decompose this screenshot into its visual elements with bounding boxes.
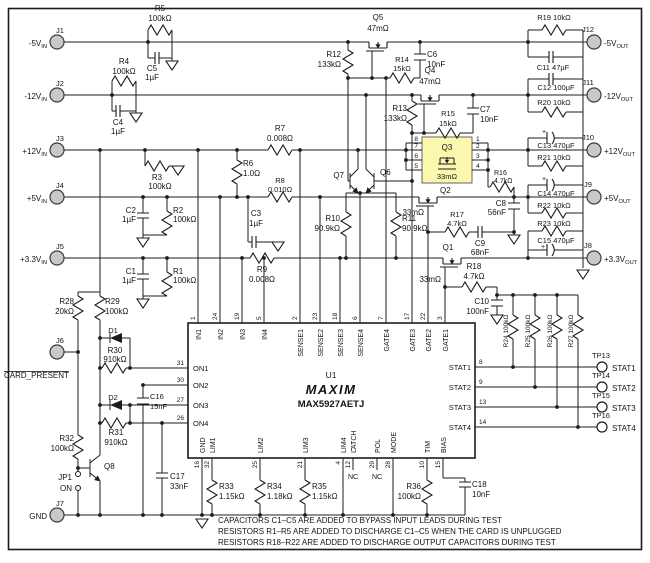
r17-val: 4.7kΩ: [447, 219, 467, 228]
r19-label: R19 10kΩ: [537, 13, 571, 22]
c2-val: 1µF: [122, 215, 136, 224]
pin-num-on2: 30: [177, 377, 185, 384]
c14-plus: +: [542, 176, 546, 183]
r7-ref: R7: [275, 124, 286, 133]
r26-label: R26 100kΩ: [547, 315, 554, 348]
c11-label: C11 47µF: [537, 63, 570, 72]
junction-dot: [526, 256, 530, 260]
pin-num-sense4: 6: [352, 316, 359, 320]
junction-dot: [196, 148, 200, 152]
pin-num-gnd: 16: [194, 461, 201, 469]
r1-ref: R1: [173, 267, 184, 276]
r14-val: 15kΩ: [393, 64, 411, 73]
c16-ref: C16: [150, 392, 164, 401]
q4-val: 47mΩ: [419, 77, 441, 86]
junction-dot: [141, 195, 145, 199]
q7-ref: Q7: [333, 171, 344, 180]
pin-num-stat4: 14: [479, 419, 487, 426]
pin-sense2: SENSE2: [318, 329, 325, 357]
r34-val: 1.18kΩ: [267, 492, 293, 501]
tp16-ref: TP16: [592, 411, 610, 420]
pin-sense4: SENSE4: [358, 329, 365, 357]
r1-val: 100kΩ: [173, 276, 196, 285]
c17-ref: C17: [170, 472, 185, 481]
tp15-ref: TP15: [592, 391, 610, 400]
q3-pin1: 1: [476, 136, 480, 143]
r28-val: 20kΩ: [55, 307, 74, 316]
junction-dot: [356, 148, 360, 152]
j6-ref: J6: [56, 336, 64, 345]
j10-ref: J10: [582, 133, 594, 142]
junction-dot: [511, 293, 515, 297]
jp1-pin-top: [76, 472, 81, 477]
junction-dot: [98, 366, 102, 370]
j9-connector: [587, 190, 601, 204]
r31-ref: R31: [109, 428, 124, 437]
q5-val: 47mΩ: [367, 24, 389, 33]
junction-dot: [486, 148, 490, 152]
q2-ref: Q2: [440, 186, 451, 195]
pin-num-in1: 1: [190, 316, 197, 320]
r16-val: 4.7kΩ: [494, 178, 512, 185]
c8-ref: C8: [496, 199, 507, 208]
r10-val: 90.9kΩ: [314, 224, 340, 233]
pin-num-gate1: 3: [437, 316, 444, 320]
r21-label: R21 10kΩ: [537, 153, 571, 162]
junction-dot: [404, 148, 408, 152]
ic-part: MAX5927AETJ: [298, 399, 365, 410]
r32-ref: R32: [59, 434, 74, 443]
pin-on3: ON3: [193, 401, 208, 410]
junction-dot: [98, 403, 102, 407]
r2-ref: R2: [173, 206, 184, 215]
tp13-label: STAT1: [612, 364, 636, 373]
r35-ref: R35: [312, 482, 327, 491]
junction-dot: [128, 421, 132, 425]
pin-num-gate4: 7: [378, 316, 385, 320]
junction-dot: [218, 195, 222, 199]
junction-dot: [141, 256, 145, 260]
pin-pol: POL: [375, 439, 382, 453]
j5-ref: J5: [56, 242, 64, 251]
jp1-pin-bottom: [76, 486, 81, 491]
r5-val: 100kΩ: [148, 14, 171, 23]
junction-dot: [165, 256, 169, 260]
r33-ref: R33: [219, 482, 234, 491]
pin-gate2: GATE2: [426, 329, 433, 352]
junction-dot: [98, 148, 102, 152]
r16-ref: R16: [494, 170, 507, 177]
c4-val: 1µF: [111, 127, 125, 136]
junction-dot: [422, 131, 426, 135]
pin-lim1: LIM1: [210, 437, 217, 453]
r18-ref: R18: [467, 262, 482, 271]
r36-val: 100kΩ: [398, 492, 421, 501]
j3-connector: [50, 143, 64, 157]
junction-dot: [370, 76, 374, 80]
c6-ref: C6: [427, 50, 438, 59]
j10-connector: [587, 143, 601, 157]
pin-stat1: STAT1: [449, 363, 471, 372]
junction-dot: [76, 513, 80, 517]
pin-on2: ON2: [193, 381, 208, 390]
pin-gate1: GATE1: [443, 329, 450, 352]
tp13-ref: TP13: [592, 351, 610, 360]
j4-connector: [50, 190, 64, 204]
c13-plus: +: [542, 129, 546, 136]
junction-dot: [533, 385, 537, 389]
r9-ref: R9: [257, 265, 268, 274]
note-line-2: RESISTORS R1–R5 ARE ADDED TO DISCHARGE C…: [218, 527, 562, 536]
r14-ref: R14: [395, 55, 409, 64]
junction-dot: [76, 466, 80, 470]
junction-dot: [338, 256, 342, 260]
c3-ref: C3: [251, 209, 262, 218]
j2-ref: J2: [56, 79, 64, 88]
r6-val: 1.0Ω: [243, 169, 260, 178]
r15-ref: R15: [441, 109, 455, 118]
r29-val: 100kΩ: [105, 307, 128, 316]
c10-ref: C10: [474, 297, 489, 306]
pin-on4: ON4: [193, 419, 208, 428]
schematic-page: J1-5VINJ2-12VINJ3+12VINJ4+5VINJ5+3.3VINJ…: [0, 0, 650, 563]
r8-ref: R8: [275, 176, 285, 185]
r4-val: 100kΩ: [112, 67, 135, 76]
pin-latch: LATCH: [351, 431, 358, 453]
junction-dot: [141, 383, 145, 387]
pin-lim3: LIM3: [303, 437, 310, 453]
junction-dot: [384, 76, 388, 80]
pin-gate4: GATE4: [384, 329, 391, 352]
junction-dot: [443, 285, 447, 289]
junction-dot: [418, 40, 422, 44]
junction-dot: [298, 148, 302, 152]
r13-ref: R13: [392, 104, 407, 113]
nc-latch: NC: [348, 474, 358, 481]
j11-connector: [587, 88, 601, 102]
j6-connector: [50, 345, 64, 359]
j11-ref: J11: [582, 78, 594, 87]
junction-dot: [200, 513, 204, 517]
pin-num-gate2: 22: [420, 312, 427, 320]
tp14-label: STAT2: [612, 384, 636, 393]
pin-num-lim1: 32: [204, 461, 211, 469]
pin-tim: TIM: [425, 441, 432, 453]
r31-val: 910kΩ: [104, 438, 127, 447]
junction-dot: [404, 158, 408, 162]
j7-connector: [50, 508, 64, 522]
r4-ref: R4: [119, 57, 130, 66]
j12-connector: [587, 35, 601, 49]
pin-stat3: STAT3: [449, 403, 471, 412]
r12-val: 133kΩ: [318, 60, 341, 69]
c10-val: 100nF: [466, 307, 489, 316]
note-line-3: RESISTORS R18–R22 ARE ADDED TO DISCHARGE…: [218, 538, 556, 547]
c3-val: 1µF: [249, 219, 263, 228]
junction-dot: [210, 513, 214, 517]
pin-num-stat3: 13: [479, 399, 487, 406]
r17-ref: R17: [450, 210, 464, 219]
q1-ref: Q1: [443, 243, 454, 252]
r10-ref: R10: [325, 214, 340, 223]
junction-dot: [128, 403, 132, 407]
r20-label: R20 10kΩ: [537, 98, 571, 107]
junction-dot: [98, 336, 102, 340]
j8-ref: J8: [584, 241, 592, 250]
junction-dot: [128, 366, 132, 370]
junction-dot: [486, 168, 490, 172]
junction-dot: [160, 513, 164, 517]
junction-dot: [110, 93, 114, 97]
q2-val: 33mΩ: [402, 208, 424, 217]
q5-ref: Q5: [373, 13, 384, 22]
pin-num-on3: 27: [177, 397, 185, 404]
pin-in4: IN4: [262, 329, 269, 340]
junction-dot: [512, 230, 516, 234]
pin-num-on4: 26: [177, 415, 185, 422]
c12-label: C12 100µF: [537, 83, 575, 92]
nc-pol: NC: [372, 474, 382, 481]
r13-val: 133kΩ: [384, 114, 407, 123]
pin-num-sense3: 18: [332, 312, 339, 320]
junction-dot: [410, 179, 414, 183]
c5-val: 1µF: [145, 73, 159, 82]
junction-dot: [526, 40, 530, 44]
junction-dot: [165, 195, 169, 199]
c17-val: 33nF: [170, 482, 188, 491]
pin-lim4: LIM4: [341, 437, 348, 453]
r9-val: 0.008Ω: [249, 275, 275, 284]
q6-ref: Q6: [380, 168, 391, 177]
pin-on1: ON1: [193, 364, 208, 373]
pin-num-tim: 10: [419, 461, 426, 469]
junction-dot: [486, 158, 490, 162]
c2-ref: C2: [126, 206, 137, 215]
r33-val: 1.15kΩ: [219, 492, 245, 501]
c7-val: 10nF: [480, 115, 498, 124]
jp1-state: ON: [60, 484, 72, 493]
r32-val: 100kΩ: [51, 444, 74, 453]
j9-ref: J9: [584, 180, 592, 189]
pin-num-in2: 24: [212, 312, 219, 320]
junction-dot: [410, 93, 414, 97]
pin-gate3: GATE3: [410, 329, 417, 352]
r15-val: 15kΩ: [439, 119, 457, 128]
c15-plus: +: [541, 244, 545, 251]
tp16-testpoint: [597, 422, 607, 432]
r36-ref: R36: [406, 482, 421, 491]
pin-num-sense1: 2: [292, 316, 299, 320]
pin-stat2: STAT2: [449, 383, 471, 392]
pin-num-in3: 19: [234, 312, 241, 320]
tp16-label: STAT4: [612, 424, 636, 433]
r3-val: 100kΩ: [148, 182, 171, 191]
junction-dot: [533, 293, 537, 297]
junction-dot: [512, 195, 516, 199]
pin-num-stat2: 9: [479, 379, 483, 386]
r35-val: 1.15kΩ: [312, 492, 338, 501]
q3-val: 33mΩ: [437, 172, 458, 181]
d1-ref: D1: [108, 326, 118, 335]
q1-val: 33mΩ: [419, 275, 441, 284]
junction-dot: [143, 148, 147, 152]
j4-ref: J4: [56, 181, 64, 190]
r11-val: 90.9kΩ: [402, 224, 428, 233]
r23-label: R23 10kΩ: [537, 219, 571, 228]
junction-dot: [98, 421, 102, 425]
junction-dot: [394, 256, 398, 260]
pin-in2: IN2: [218, 329, 225, 340]
junction-dot: [235, 195, 239, 199]
junction-dot: [364, 93, 368, 97]
c7-ref: C7: [480, 105, 491, 114]
j6-label: CARD_PRESENT: [4, 371, 69, 380]
r27-label: R27 100kΩ: [568, 315, 575, 348]
ic-brand: MAXIM: [306, 382, 357, 397]
c18-val: 10nF: [472, 490, 490, 499]
junction-dot: [346, 76, 350, 80]
junction-dot: [246, 195, 250, 199]
c18-ref: C18: [472, 480, 487, 489]
pin-num-on1: 31: [177, 360, 185, 367]
j3-ref: J3: [56, 134, 64, 143]
junction-dot: [346, 40, 350, 44]
junction-dot: [344, 256, 348, 260]
r3-ref: R3: [152, 173, 163, 182]
j1-ref: J1: [56, 26, 64, 35]
pin-in3: IN3: [240, 329, 247, 340]
pin-sense1: SENSE1: [298, 329, 305, 357]
junction-dot: [526, 195, 530, 199]
c1-val: 1µF: [122, 276, 136, 285]
pin-mode: MODE: [391, 432, 398, 453]
c16-val: 15nF: [150, 402, 168, 411]
pin-lim2: LIM2: [258, 437, 265, 453]
pin-in1: IN1: [196, 329, 203, 340]
junction-dot: [76, 350, 80, 354]
q3-ref: Q3: [442, 143, 453, 152]
junction-dot: [526, 93, 530, 97]
pin-num-pol: 29: [369, 461, 376, 469]
junction-dot: [146, 40, 150, 44]
junction-dot: [511, 365, 515, 369]
r30-ref: R30: [108, 346, 123, 355]
pin-num-lim3: 21: [297, 461, 304, 469]
q3-pin8: 8: [414, 136, 418, 143]
r34-ref: R34: [267, 482, 282, 491]
r7-val: 0.008Ω: [267, 134, 293, 143]
pin-gnd: GND: [200, 437, 207, 453]
junction-dot: [358, 191, 362, 195]
junction-dot: [471, 93, 475, 97]
j8-connector: [587, 251, 601, 265]
junction-dot: [98, 513, 102, 517]
pin-num-in4: 5: [256, 316, 263, 320]
pin-num-sense2: 23: [312, 312, 319, 320]
pin-num-latch: 12: [345, 461, 352, 469]
q3-pin6: 6: [414, 153, 418, 160]
pin-num-bias: 15: [435, 461, 442, 469]
q3-pin7: 7: [414, 143, 418, 150]
c8-val: 56nF: [488, 208, 506, 217]
pin-num-lim2: 25: [252, 461, 259, 469]
j7-ref: J7: [56, 499, 64, 508]
circuit-schematic: J1-5VINJ2-12VINJ3+12VINJ4+5VINJ5+3.3VINJ…: [0, 0, 650, 563]
pin-num-lim4: 4: [335, 461, 342, 465]
junction-dot: [555, 405, 559, 409]
j7-label: GND: [29, 512, 47, 521]
junction-dot: [160, 421, 164, 425]
c14-label: C14 470µF: [537, 189, 575, 198]
q8-ref: Q8: [104, 462, 115, 471]
ic-ref: U1: [326, 370, 337, 380]
r22-label: R22 10kΩ: [537, 201, 571, 210]
junction-dot: [240, 256, 244, 260]
pin-num-stat1: 8: [479, 359, 483, 366]
junction-dot: [495, 293, 499, 297]
c4-ref: C4: [113, 118, 124, 127]
c13-label: C13 470µF: [537, 141, 575, 150]
c9-ref: C9: [475, 239, 486, 248]
q3-pin3: 3: [476, 153, 480, 160]
q3-pin2: 2: [476, 143, 480, 150]
r28-ref: R28: [59, 297, 74, 306]
junction-dot: [555, 293, 559, 297]
r29-ref: R29: [105, 297, 120, 306]
pin-num-mode: 28: [385, 461, 392, 469]
c9-val: 68nF: [471, 248, 489, 257]
junction-dot: [318, 195, 322, 199]
r2-val: 100kΩ: [173, 215, 196, 224]
junction-dot: [262, 256, 266, 260]
q4-ref: Q4: [425, 66, 436, 75]
r5-ref: R5: [155, 4, 166, 13]
pin-num-gate3: 17: [404, 312, 411, 320]
r25-label: R25 100kΩ: [525, 315, 532, 348]
q3-pin5: 5: [414, 163, 418, 170]
junction-dot: [410, 131, 414, 135]
note-line-1: CAPACITORS C1–C5 ARE ADDED TO BYPASS INP…: [218, 516, 502, 525]
junction-dot: [576, 425, 580, 429]
r18-val: 4.7kΩ: [463, 272, 484, 281]
j12-ref: J12: [582, 25, 594, 34]
junction-dot: [235, 148, 239, 152]
c1-ref: C1: [126, 267, 137, 276]
pin-sense3: SENSE3: [338, 329, 345, 357]
r30-val: 910kΩ: [103, 355, 126, 364]
tp14-ref: TP14: [592, 371, 610, 380]
q3-pin4: 4: [476, 163, 480, 170]
jp1-ref: JP1: [58, 473, 72, 482]
r12-ref: R12: [326, 50, 341, 59]
pin-stat4: STAT4: [449, 423, 471, 432]
j1-connector: [50, 35, 64, 49]
r6-ref: R6: [243, 159, 254, 168]
j2-connector: [50, 88, 64, 102]
r8-val: 0.010Ω: [268, 185, 293, 194]
tp15-label: STAT3: [612, 404, 636, 413]
c5-ref: C5: [147, 64, 158, 73]
d2-ref: D2: [108, 393, 118, 402]
pin-bias: BIAS: [441, 437, 448, 453]
j5-connector: [50, 251, 64, 265]
r24-label: R24 100kΩ: [503, 315, 510, 348]
junction-dot: [141, 513, 145, 517]
junction-dot: [526, 148, 530, 152]
